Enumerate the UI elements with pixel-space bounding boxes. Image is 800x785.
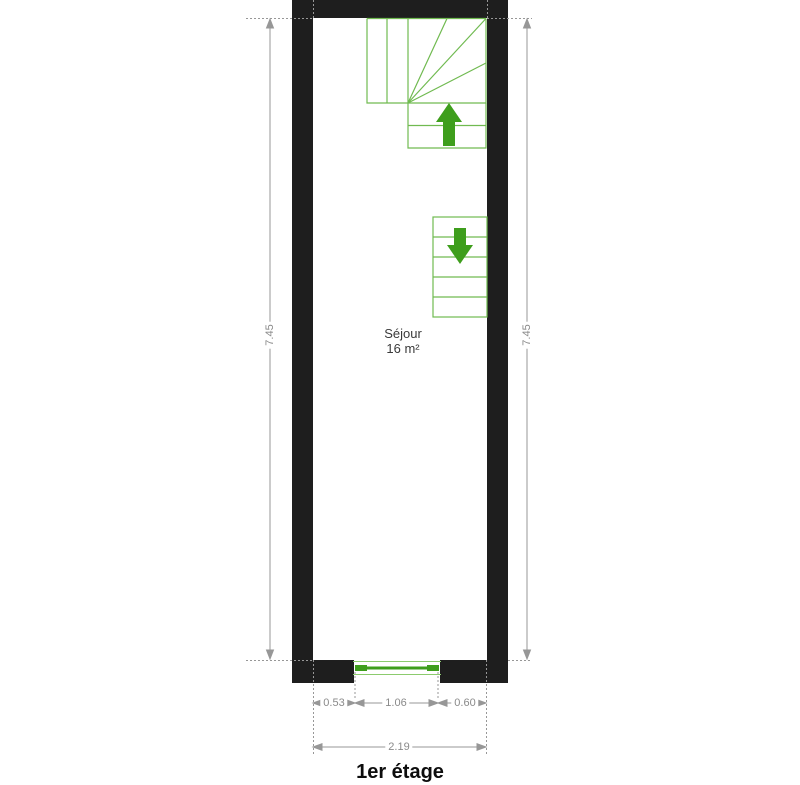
room-area-label: 16 m² [384,341,422,356]
dim-right-height-label: 7.45 [521,321,533,348]
stair-winder-up [367,19,486,149]
room-name-label: Séjour [384,326,422,341]
dimension-lines [246,0,532,756]
dim-left-height-label: 7.45 [264,321,276,348]
floor-plan: 7.45 7.45 0.53 1.06 0.60 2.19 Séjour 16 … [0,0,800,785]
plan-linework [0,0,800,785]
room-label: Séjour 16 m² [384,326,422,356]
dim-bottom-right-label: 0.60 [451,697,478,709]
dim-bottom-total-label: 2.19 [385,741,412,753]
window [353,662,441,675]
stair-down-arrow-icon [447,228,473,264]
stair-up-arrow-icon [436,103,462,146]
plan-title: 1er étage [356,761,444,784]
dim-bottom-window-label: 1.06 [382,697,409,709]
dim-bottom-left-label: 0.53 [320,697,347,709]
